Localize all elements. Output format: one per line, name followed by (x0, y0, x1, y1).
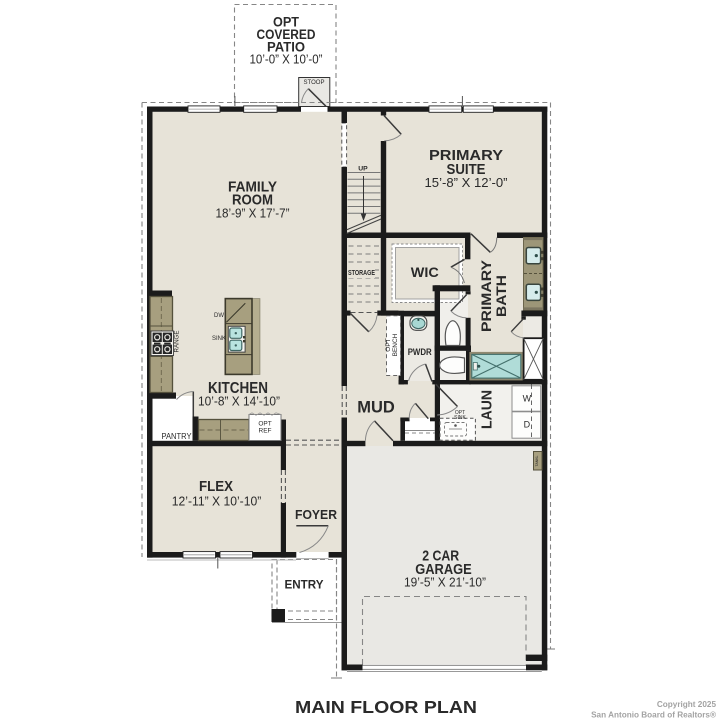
svg-text:10’-0” X 10’-0”: 10’-0” X 10’-0” (250, 53, 323, 67)
svg-text:ENTRY: ENTRY (285, 578, 324, 592)
svg-text:STOOP: STOOP (304, 80, 325, 86)
svg-text:MUD: MUD (357, 398, 395, 417)
svg-text:18’-9” X 17’-7”: 18’-9” X 17’-7” (216, 207, 290, 221)
svg-text:BATH: BATH (493, 275, 509, 317)
svg-text:WIC: WIC (411, 264, 439, 280)
svg-text:SINK: SINK (454, 415, 466, 421)
svg-text:Copyright 2025: Copyright 2025 (657, 700, 717, 709)
svg-text:TANKL: TANKL (535, 455, 539, 466)
svg-text:10’-8” X 14’-10”: 10’-8” X 14’-10” (198, 395, 280, 409)
svg-text:PWDR: PWDR (408, 347, 432, 357)
svg-text:FLEX: FLEX (199, 478, 233, 495)
svg-text:PRIMARY: PRIMARY (478, 259, 494, 332)
svg-text:PANTRY: PANTRY (162, 431, 192, 441)
svg-text:19’-5” X 21’-10”: 19’-5” X 21’-10” (404, 576, 486, 590)
svg-text:D: D (524, 420, 531, 430)
svg-text:REF: REF (259, 428, 272, 435)
svg-text:RANGE: RANGE (175, 331, 181, 353)
svg-text:12’-11” X 10’-10”: 12’-11” X 10’-10” (172, 495, 262, 509)
svg-text:OPT: OPT (258, 421, 271, 428)
svg-text:MAIN FLOOR PLAN: MAIN FLOOR PLAN (295, 697, 477, 717)
svg-text:15’-8” X 12’-0”: 15’-8” X 12’-0” (425, 176, 508, 190)
svg-text:UP: UP (358, 166, 368, 173)
svg-text:SINK: SINK (212, 336, 226, 342)
svg-text:DW: DW (214, 313, 224, 319)
svg-text:FOYER: FOYER (295, 508, 337, 522)
svg-text:OPT: OPT (385, 338, 392, 351)
svg-text:LAUN: LAUN (479, 390, 496, 429)
svg-text:San Antonio Board of Realtors®: San Antonio Board of Realtors® (591, 711, 716, 720)
svg-text:W: W (523, 394, 532, 404)
svg-text:BENCH: BENCH (392, 333, 399, 356)
svg-text:STORAGE: STORAGE (348, 270, 375, 277)
